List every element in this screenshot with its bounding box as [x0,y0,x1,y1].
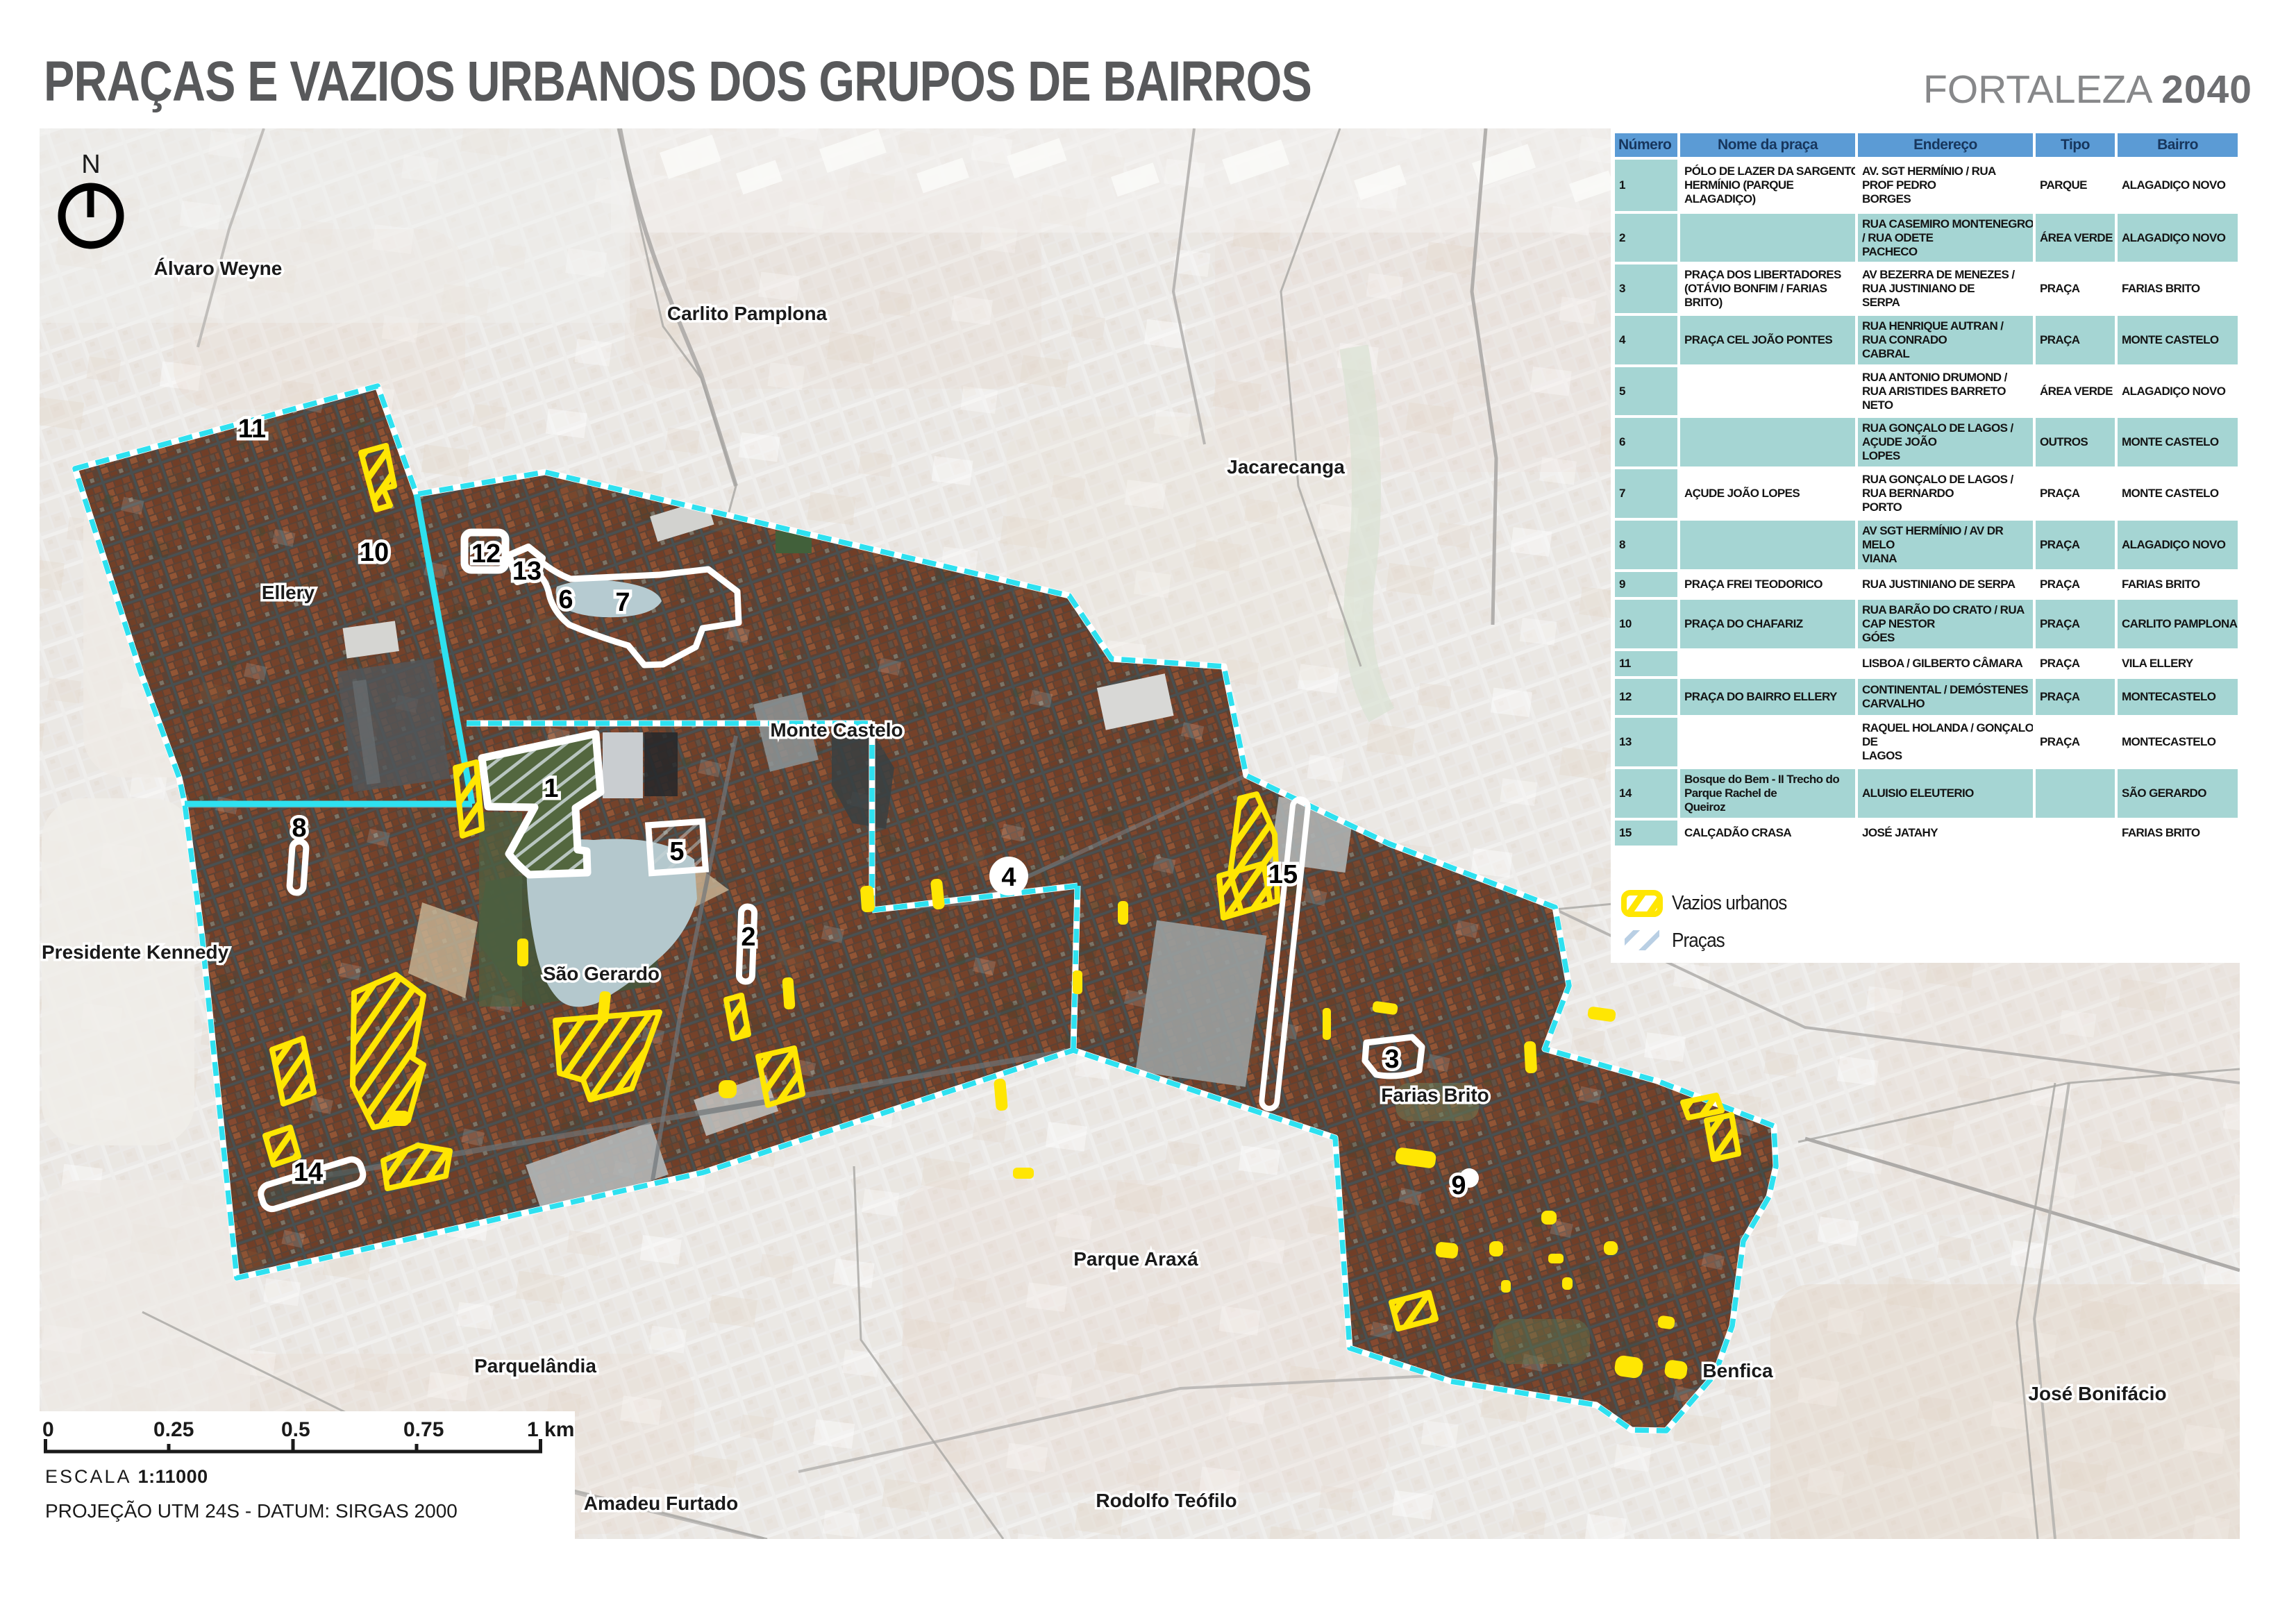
svg-text:6: 6 [558,585,573,614]
svg-text:Rodolfo Teófilo: Rodolfo Teófilo [1096,1490,1237,1511]
svg-text:Álvaro Weyne: Álvaro Weyne [154,258,283,279]
svg-text:Jacarecanga: Jacarecanga [1227,456,1345,478]
svg-text:2: 2 [741,923,755,952]
svg-text:São Gerardo: São Gerardo [543,963,660,984]
svg-text:11: 11 [238,414,266,444]
svg-text:1: 1 [544,774,558,803]
svg-text:N: N [81,150,100,179]
svg-text:Ellery: Ellery [262,582,315,603]
svg-text:Farias Brito: Farias Brito [1381,1084,1489,1106]
svg-text:0: 0 [42,1418,54,1441]
svg-text:Carlito Pamplona: Carlito Pamplona [667,303,828,324]
svg-text:7: 7 [615,588,630,617]
svg-text:4: 4 [1001,863,1016,892]
svg-text:13: 13 [512,557,542,586]
svg-text:14: 14 [294,1158,323,1187]
svg-text:9: 9 [1451,1171,1466,1200]
svg-text:12: 12 [471,539,501,569]
svg-text:3: 3 [1384,1045,1399,1074]
svg-text:José Bonifácio: José Bonifácio [2028,1383,2166,1404]
svg-text:Monte Castelo: Monte Castelo [770,719,903,741]
svg-text:0.75: 0.75 [403,1418,444,1441]
svg-text:5: 5 [669,837,684,866]
svg-text:15: 15 [1268,860,1298,889]
svg-text:Parque Araxá: Parque Araxá [1073,1248,1198,1270]
svg-text:8: 8 [292,814,306,843]
svg-text:Parquelândia: Parquelândia [474,1355,596,1377]
svg-text:1 km: 1 km [527,1418,574,1441]
svg-text:0.5: 0.5 [281,1418,310,1441]
svg-text:Benfica: Benfica [1702,1360,1773,1381]
svg-text:Presidente Kennedy: Presidente Kennedy [42,941,229,963]
svg-text:Amadeu Furtado: Amadeu Furtado [584,1492,738,1514]
svg-text:0.25: 0.25 [153,1418,194,1441]
svg-text:10: 10 [360,538,389,567]
